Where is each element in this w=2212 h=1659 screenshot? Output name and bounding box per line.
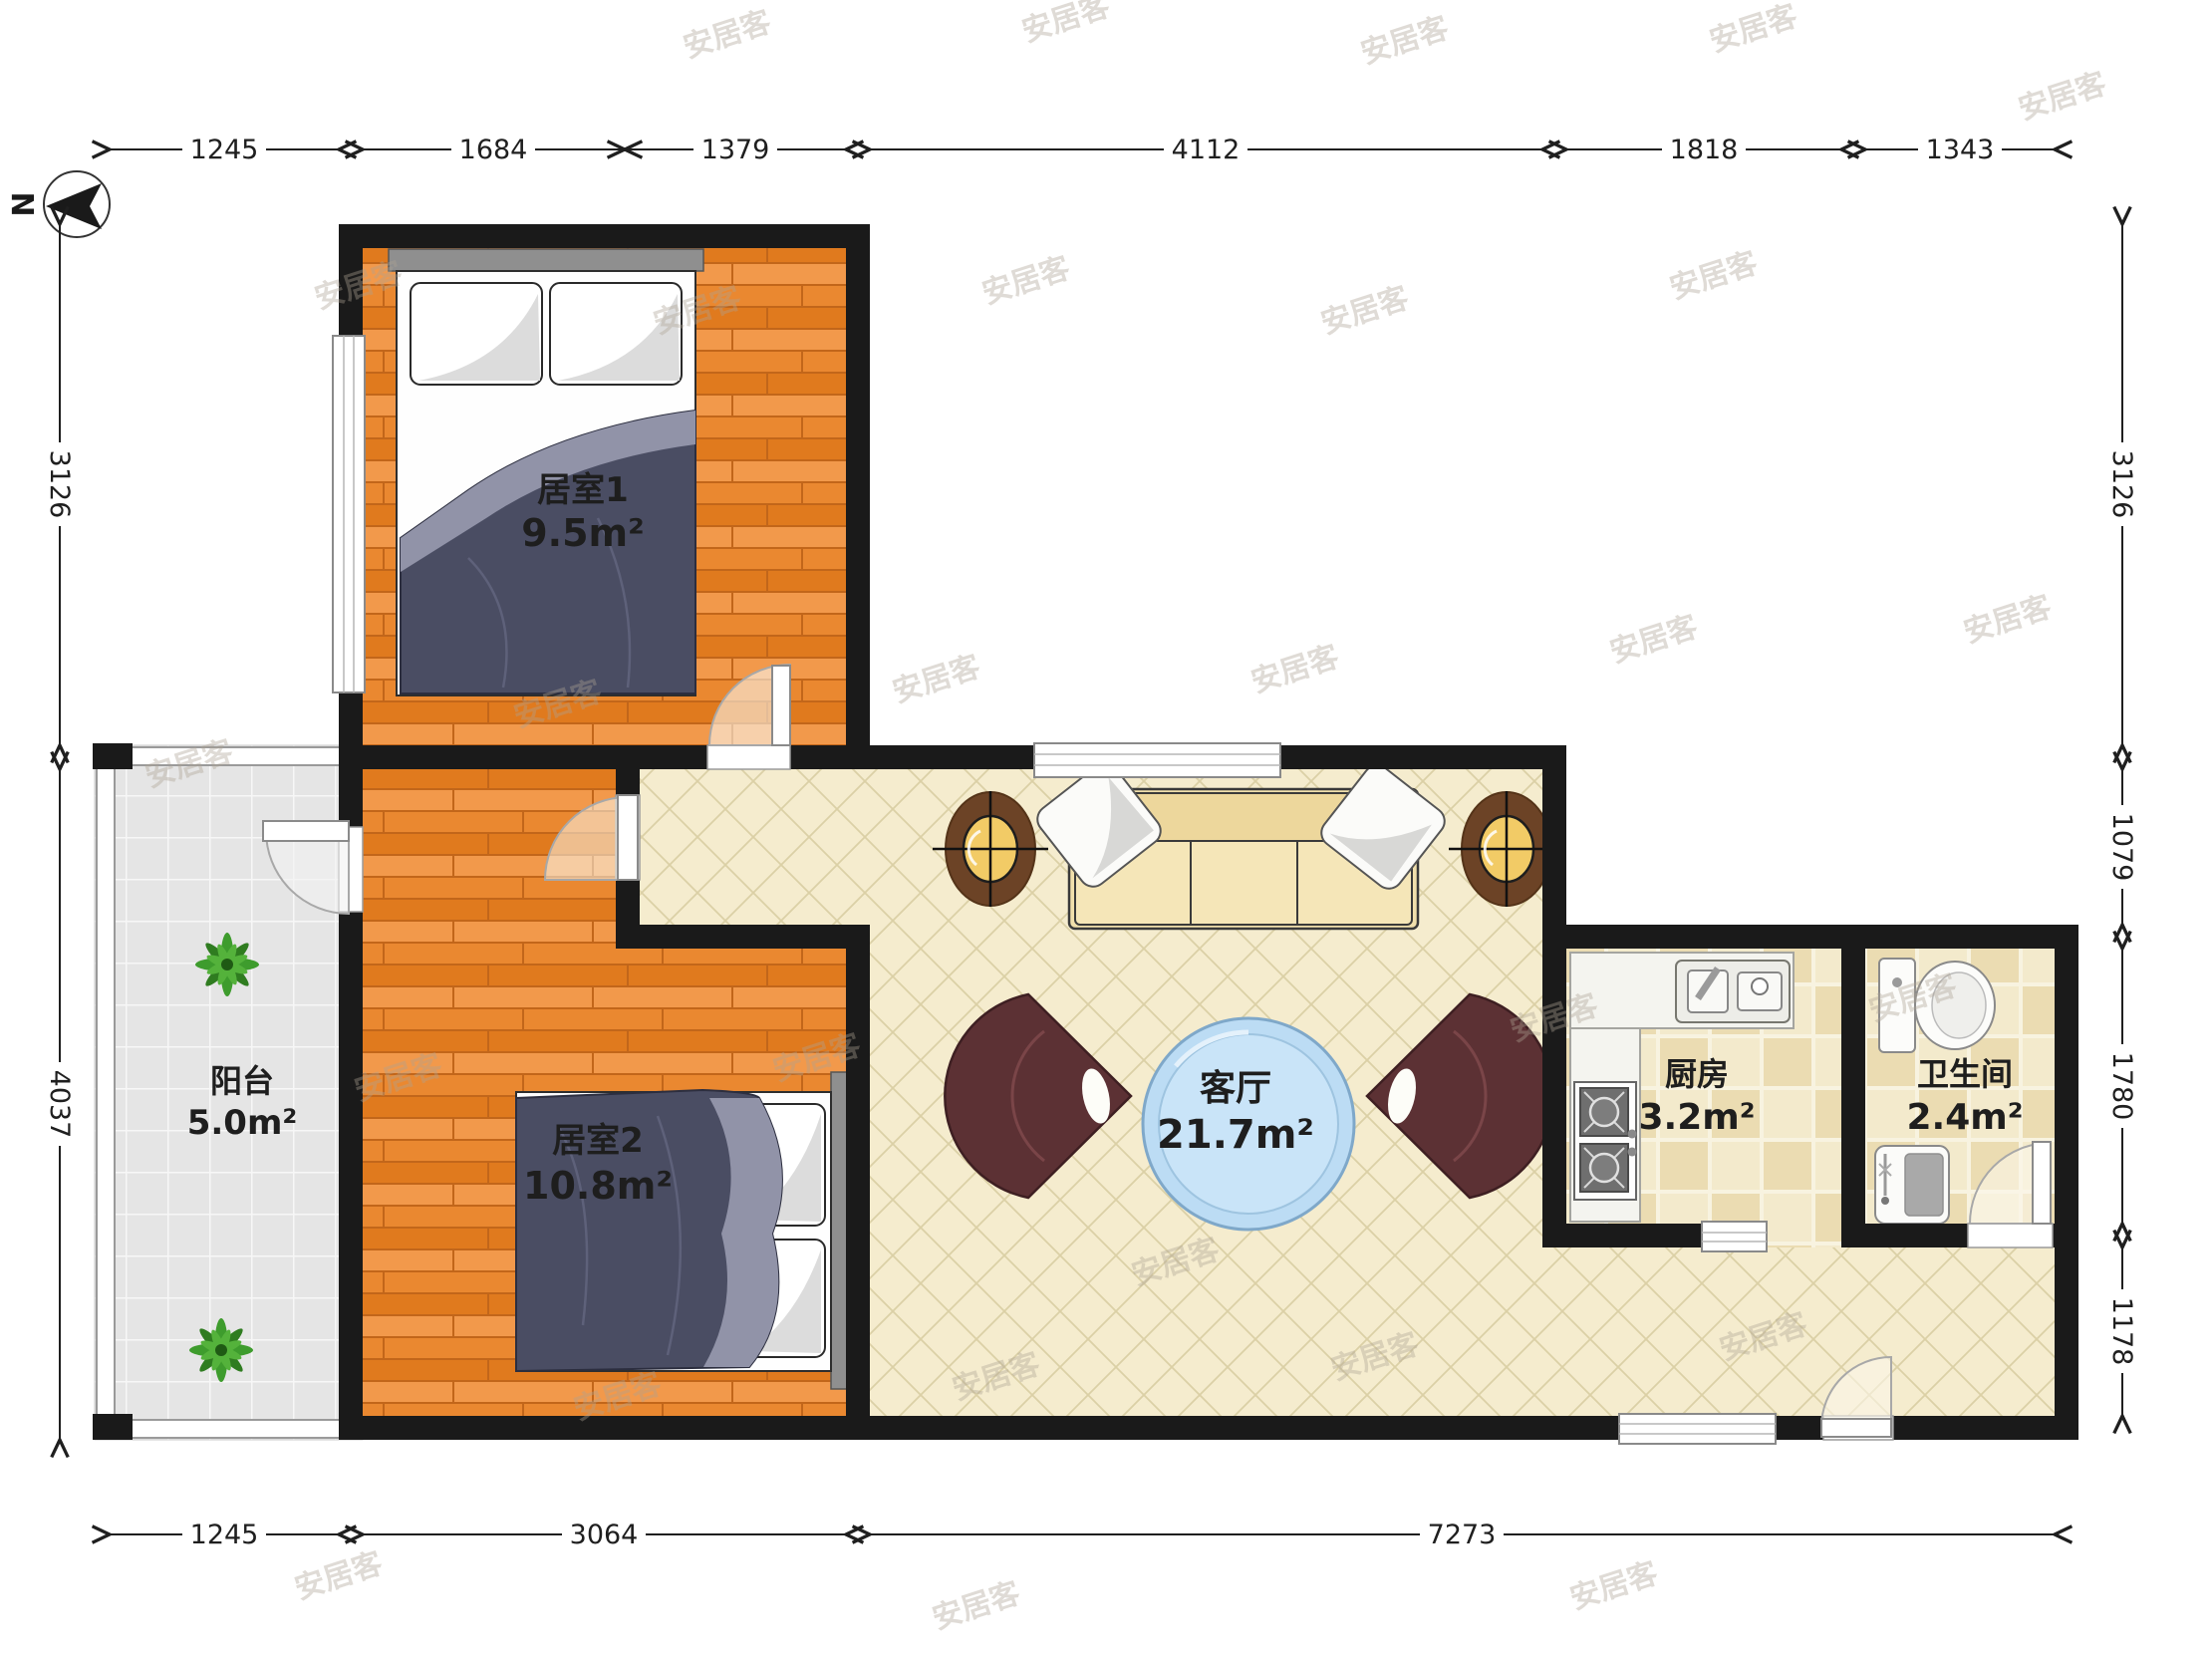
- dim-top-4: 4112: [1172, 135, 1241, 165]
- watermark-text: 安居客: [1247, 640, 1343, 700]
- watermark-text: 安居客: [1706, 0, 1801, 60]
- watermark-text: 安居客: [1606, 610, 1702, 671]
- dim-bottom-3: 7273: [1428, 1520, 1497, 1550]
- watermark-text: 安居客: [1317, 281, 1413, 342]
- bedroom1-area: 9.5m²: [521, 511, 645, 555]
- bathroom-sink: [1875, 1146, 1949, 1224]
- kitchen-area: 3.2m²: [1638, 1097, 1755, 1138]
- bathroom-area: 2.4m²: [1906, 1097, 2023, 1138]
- watermark-text: 安居客: [680, 5, 775, 66]
- bedroom2-bed: [516, 1072, 853, 1389]
- north-label: N: [7, 191, 42, 216]
- dim-bottom-1: 1245: [190, 1520, 259, 1550]
- bedroom1-name: 居室1: [537, 470, 629, 510]
- dim-right-2: 1079: [2106, 813, 2137, 882]
- living-area: 21.7m²: [1157, 1112, 1314, 1158]
- watermark-text: 安居客: [889, 650, 984, 710]
- living-floor-corridor: [1542, 1224, 2078, 1440]
- dim-right-4: 1178: [2106, 1297, 2137, 1366]
- watermark-text: 安居客: [1666, 246, 1762, 307]
- dim-top-6: 1343: [1926, 135, 1995, 165]
- watermark-text: 安居客: [1566, 1556, 1662, 1617]
- floorplan: 居室1 9.5m² 居室2 10.8m² 客厅 21.7m² 厨房 3.2m² …: [0, 0, 2212, 1659]
- watermark-text: 安居客: [929, 1576, 1024, 1637]
- bedroom1-window: [333, 336, 365, 692]
- bedroom2-name: 居室2: [552, 1121, 644, 1161]
- dim-top-5: 1818: [1670, 135, 1739, 165]
- north-indicator: N: [7, 171, 110, 237]
- balcony-name: 阳台: [210, 1062, 274, 1100]
- watermark-text: 安居客: [1960, 590, 2056, 651]
- kitchen-stove: [1574, 1082, 1637, 1200]
- kitchen-window: [1702, 1222, 1767, 1251]
- watermark-text: 安居客: [978, 251, 1074, 312]
- kitchen-sink: [1676, 961, 1790, 1022]
- dim-left-1: 3126: [44, 450, 75, 519]
- watermark-text: 安居客: [1018, 0, 1114, 50]
- bathroom-name: 卫生间: [1917, 1055, 2013, 1093]
- dim-right-1: 3126: [2106, 450, 2137, 519]
- watermark-text: 安居客: [291, 1546, 387, 1607]
- bedroom2-area: 10.8m²: [523, 1164, 673, 1208]
- dim-left-2: 4037: [44, 1070, 75, 1139]
- dim-bottom-2: 3064: [570, 1520, 639, 1550]
- dim-top-2: 1684: [459, 135, 528, 165]
- dim-top-1: 1245: [190, 135, 259, 165]
- balcony-area: 5.0m²: [187, 1103, 298, 1143]
- living-name: 客厅: [1200, 1068, 1271, 1109]
- watermark-text: 安居客: [2015, 67, 2110, 128]
- living-top-window: [1034, 743, 1280, 777]
- dim-right-3: 1780: [2106, 1052, 2137, 1121]
- dim-top-3: 1379: [701, 135, 770, 165]
- kitchen-name: 厨房: [1665, 1055, 1729, 1093]
- watermark-text: 安居客: [1357, 11, 1453, 72]
- living-bottom-window: [1619, 1414, 1776, 1444]
